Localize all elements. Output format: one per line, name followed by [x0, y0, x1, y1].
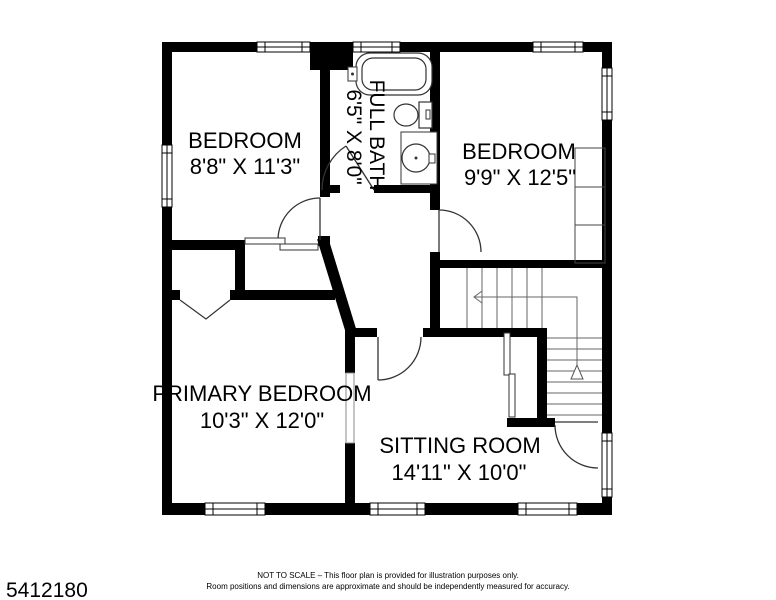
door-sitting-room	[378, 337, 421, 380]
room-label-bedroom-top-left: BEDROOM	[188, 128, 302, 153]
room-label-primary-bedroom: PRIMARY BEDROOM	[152, 381, 371, 406]
toilet-icon	[394, 102, 432, 128]
window	[353, 42, 400, 52]
footer: 5412180 NOT TO SCALE – This floor plan i…	[6, 571, 570, 600]
window	[602, 433, 612, 497]
door-right-bedroom	[439, 210, 481, 252]
room-dims-sitting-room: 14'11" X 10'0"	[392, 460, 527, 485]
floor-plan-svg: BEDROOM 8'8" X 11'3" FULL BATH 6'5" X 8'…	[0, 0, 776, 600]
floor-plan-page: BEDROOM 8'8" X 11'3" FULL BATH 6'5" X 8'…	[0, 0, 776, 600]
room-dims-bedroom-top-right: 9'9" X 12'5"	[464, 165, 576, 190]
closet-right-bedroom	[575, 148, 605, 263]
window	[257, 42, 310, 52]
door-left-bedroom	[278, 198, 320, 240]
room-dims-bedroom-top-left: 8'8" X 11'3"	[190, 154, 300, 179]
disclaimer-line-2: Room positions and dimensions are approx…	[206, 582, 569, 591]
room-label-sitting-room: SITTING ROOM	[379, 433, 540, 458]
room-dims-primary-bedroom: 10'3" X 12'0"	[200, 408, 324, 433]
stairs-up-arrow-icon	[571, 365, 583, 379]
window	[533, 42, 583, 52]
window	[518, 503, 577, 515]
door-stair-bottom	[555, 422, 598, 468]
sliding-closet-doors-stairs	[504, 333, 515, 417]
sink-vanity-icon	[401, 132, 437, 184]
sliding-closet-doors-left-bedroom	[245, 238, 318, 250]
room-label-bedroom-top-right: BEDROOM	[462, 139, 576, 164]
disclaimer-line-1: NOT TO SCALE – This floor plan is provid…	[257, 571, 519, 580]
listing-id: 5412180	[6, 579, 88, 600]
window	[162, 145, 172, 207]
window	[205, 503, 265, 515]
diagonal-wall	[324, 243, 351, 331]
window	[370, 503, 425, 515]
window	[602, 68, 612, 120]
stairs	[467, 268, 602, 415]
room-label-full-bath: FULL BATH	[365, 80, 388, 191]
room-dims-full-bath: 6'5" X 8'0"	[342, 89, 365, 184]
closet-chevron-door	[180, 300, 230, 319]
